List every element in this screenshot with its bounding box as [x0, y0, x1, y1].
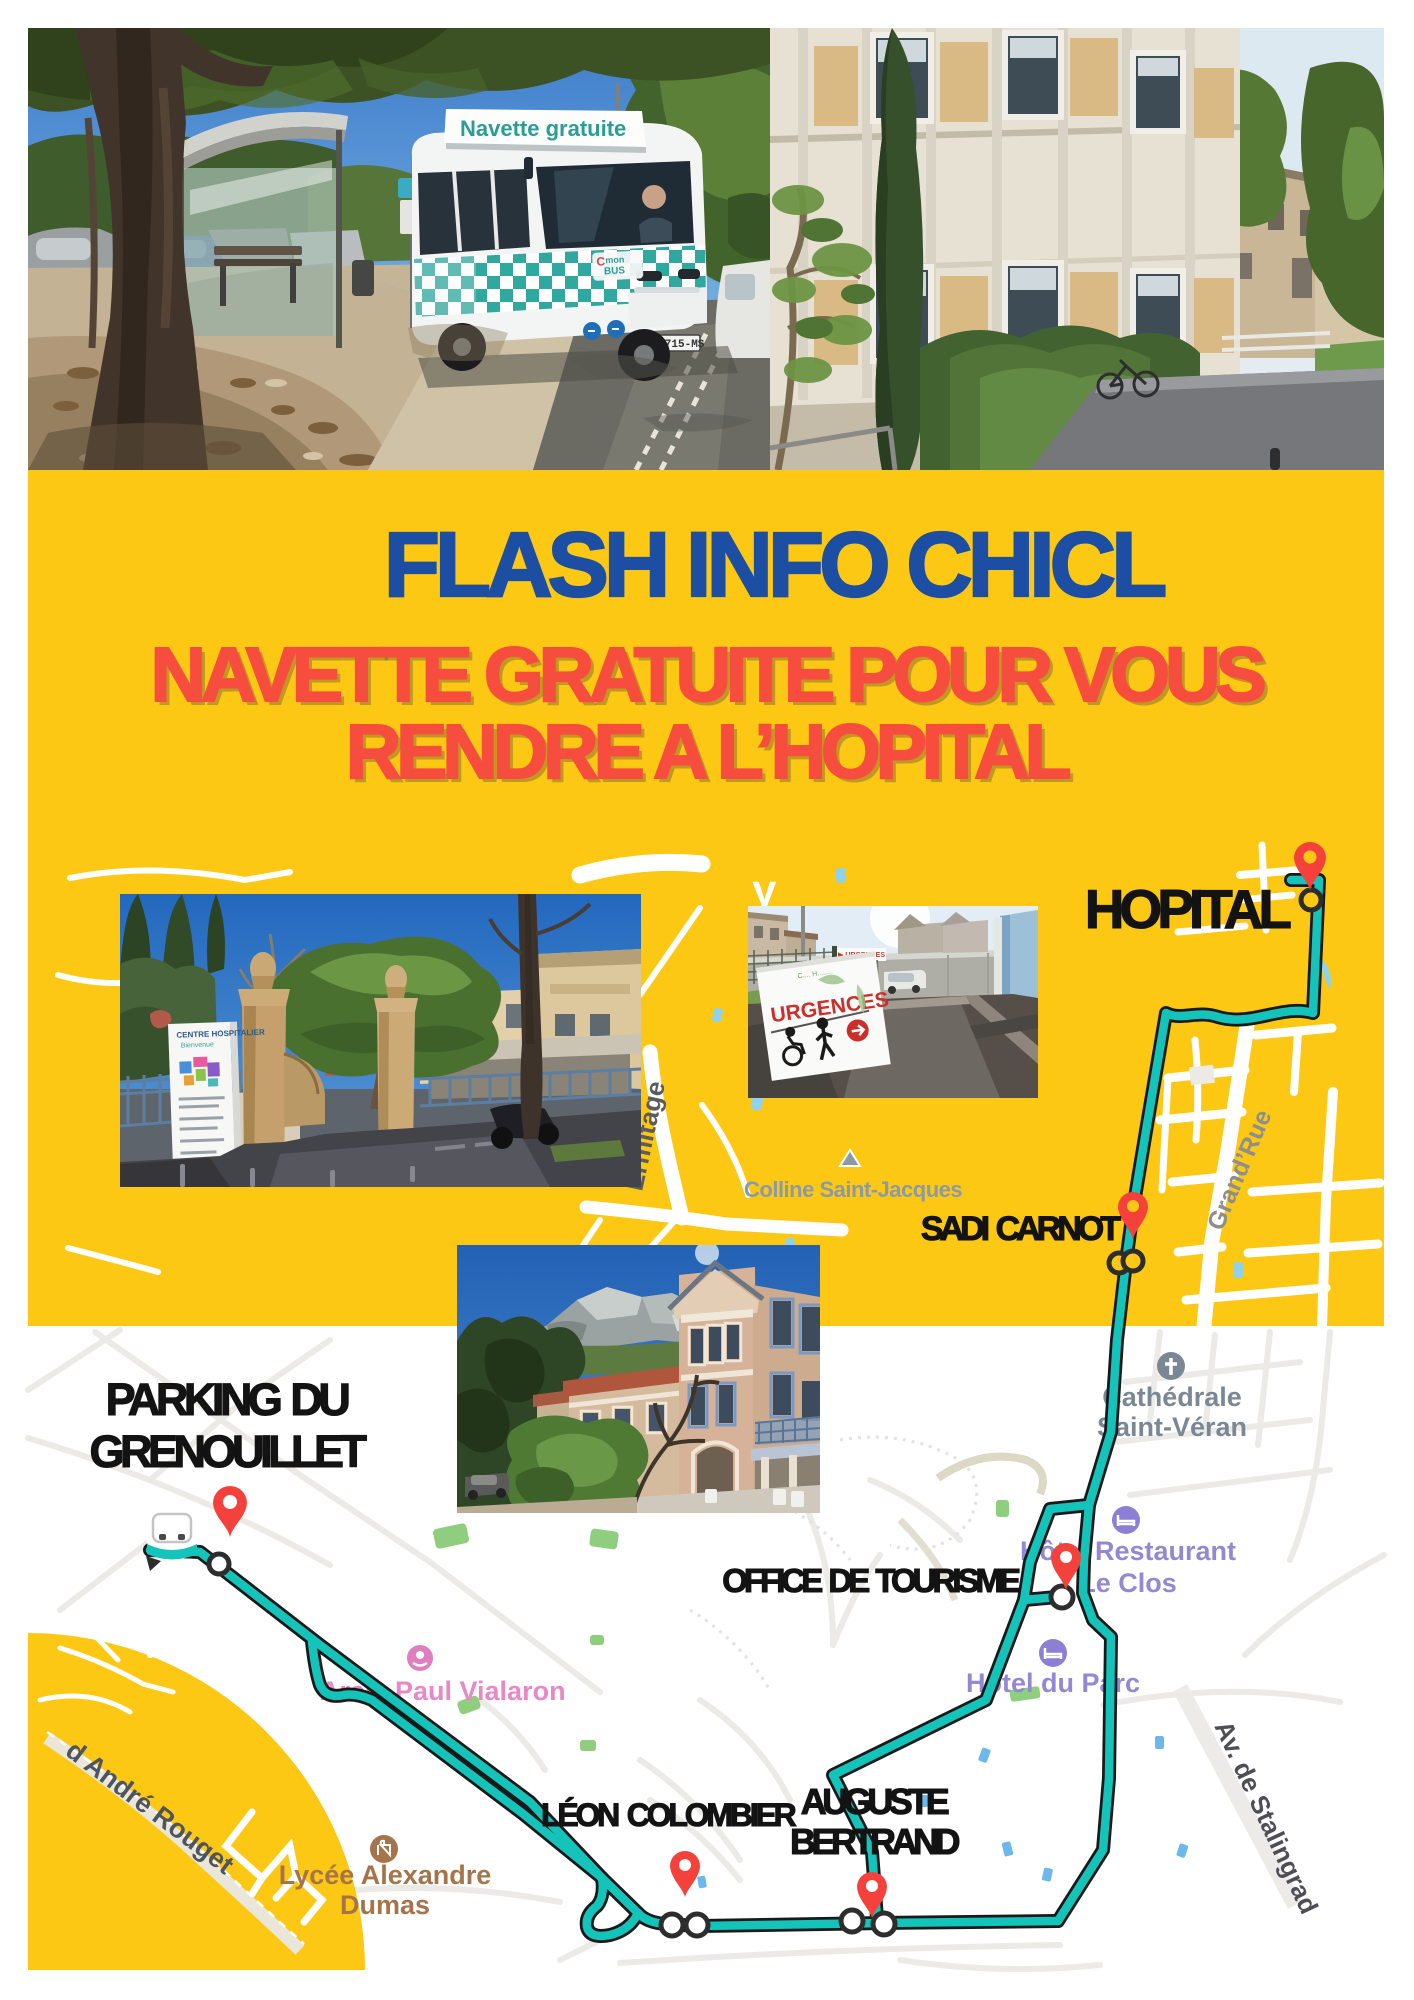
svg-text:Le Clos: Le Clos — [1079, 1568, 1177, 1598]
svg-text:Colline Saint-Jacques: Colline Saint-Jacques — [744, 1177, 962, 1202]
svg-text:Bienvenue: Bienvenue — [181, 1041, 214, 1049]
svg-text:mon: mon — [605, 254, 624, 265]
svg-text:BUS: BUS — [604, 265, 626, 277]
svg-text:Saint-Véran: Saint-Véran — [1097, 1412, 1247, 1442]
svg-text:Dumas: Dumas — [340, 1890, 430, 1920]
svg-text:Lycée Alexandre: Lycée Alexandre — [279, 1860, 492, 1890]
svg-text:Grand’Rue: Grand’Rue — [1202, 1106, 1278, 1235]
svg-text:Cathédrale: Cathédrale — [1102, 1382, 1242, 1412]
svg-text:Paul Vialaron: Paul Vialaron — [395, 1676, 566, 1706]
svg-text:Av. de Stalingrad: Av. de Stalingrad — [1209, 1716, 1325, 1919]
svg-text:Navette gratuite: Navette gratuite — [460, 116, 626, 141]
